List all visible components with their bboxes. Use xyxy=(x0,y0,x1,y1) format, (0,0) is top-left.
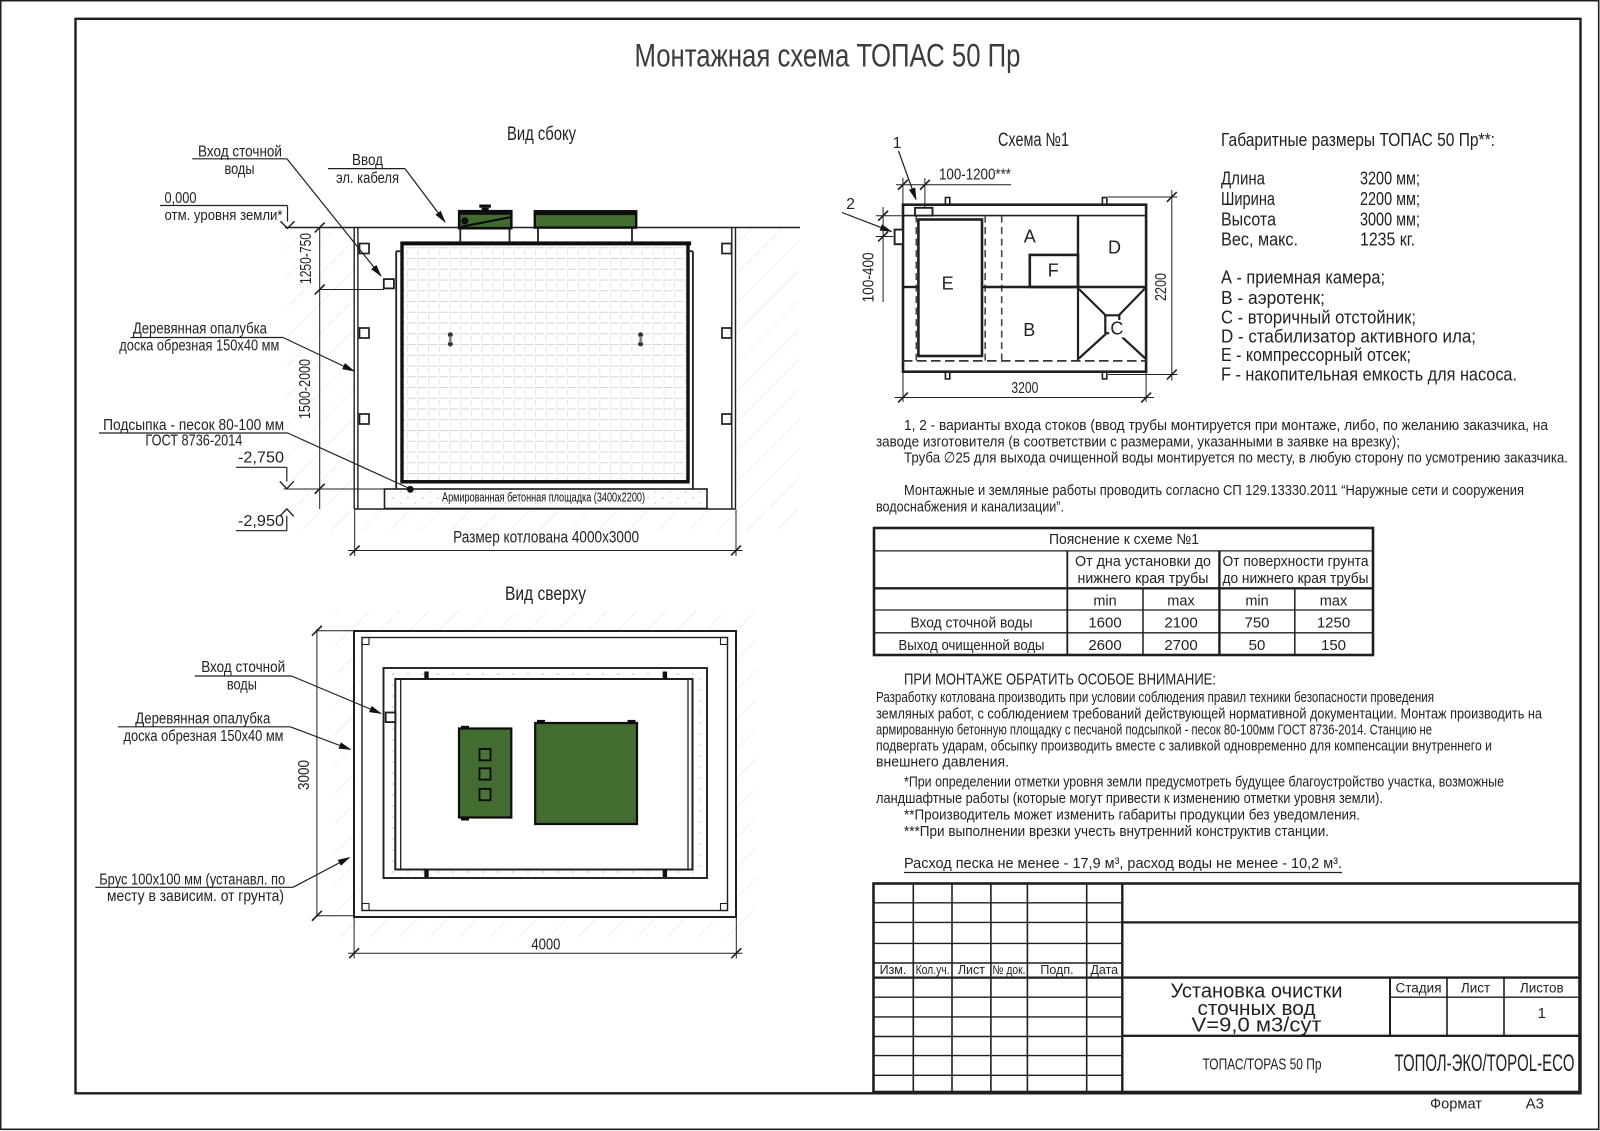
svg-text:воды: воды xyxy=(225,161,255,178)
svg-text:***При выполнении врезки учест: ***При выполнении врезки учесть внутренн… xyxy=(904,823,1329,840)
svg-text:100-1200***: 100-1200*** xyxy=(939,167,1011,184)
svg-text:эл. кабеля: эл. кабеля xyxy=(336,170,399,187)
svg-text:отм. уровня земли*: отм. уровня земли* xyxy=(165,208,283,224)
svg-text:min: min xyxy=(1245,594,1268,610)
svg-text:1250-750: 1250-750 xyxy=(298,233,315,284)
svg-text:1250: 1250 xyxy=(1317,615,1350,632)
svg-text:max: max xyxy=(1320,594,1348,610)
svg-text:Формат: Формат xyxy=(1430,1096,1482,1113)
svg-text:Размер котлована 4000х3000: Размер котлована 4000х3000 xyxy=(453,529,639,547)
svg-text:Е - компрессорный отсек;: Е - компрессорный отсек; xyxy=(1221,344,1411,365)
svg-text:Монтажные и земляные работы пр: Монтажные и земляные работы проводить со… xyxy=(904,482,1524,499)
svg-text:1, 2 - варианты входа стоков: 1, 2 - варианты входа стоков (ввод трубы… xyxy=(904,417,1549,434)
svg-text:150: 150 xyxy=(1321,637,1346,654)
svg-text:От поверхности грунта: От поверхности грунта xyxy=(1223,554,1370,570)
svg-text:Вид сбоку: Вид сбоку xyxy=(507,124,576,145)
svg-text:*При определении отметки уровн: *При определении отметки уровня земли пр… xyxy=(904,774,1504,791)
svg-text:А3: А3 xyxy=(1526,1096,1544,1113)
svg-text:доска обрезная 150х40 мм: доска обрезная 150х40 мм xyxy=(124,728,284,745)
svg-text:Вход сточной: Вход сточной xyxy=(198,144,282,161)
svg-text:4000: 4000 xyxy=(531,937,560,954)
svg-text:нижнего края трубы: нижнего края трубы xyxy=(1078,571,1209,587)
svg-text:Лист: Лист xyxy=(1461,980,1490,995)
svg-text:Подп.: Подп. xyxy=(1040,963,1073,977)
svg-text:750: 750 xyxy=(1244,615,1269,632)
svg-text:Армированная бетонная площадка: Армированная бетонная площадка (3400х220… xyxy=(442,491,645,505)
svg-text:Кол.уч.: Кол.уч. xyxy=(916,963,950,977)
svg-text:Подсыпка - песок 80-100 мм: Подсыпка - песок 80-100 мм xyxy=(103,417,284,434)
svg-text:Деревянная опалубка: Деревянная опалубка xyxy=(133,321,267,338)
svg-text:2700: 2700 xyxy=(1164,637,1197,654)
svg-text:3200 мм;: 3200 мм; xyxy=(1360,168,1420,189)
svg-text:водоснабжения и канализации”.: водоснабжения и канализации”. xyxy=(876,499,1064,516)
svg-text:Пояснение к схеме №1: Пояснение к схеме №1 xyxy=(1049,531,1199,548)
svg-text:ГОСТ 8736-2014: ГОСТ 8736-2014 xyxy=(145,433,242,450)
svg-text:1: 1 xyxy=(1538,1005,1546,1022)
svg-text:В: В xyxy=(1023,320,1035,340)
svg-text:F - накопительная емкость для: F - накопительная емкость для насоса. xyxy=(1221,364,1517,385)
svg-text:внешнего давления.: внешнего давления. xyxy=(876,754,1009,771)
svg-text:2600: 2600 xyxy=(1088,637,1121,654)
svg-text:Расход песка не менее - 17,9 м: Расход песка не менее - 17,9 м³, расход … xyxy=(904,855,1342,872)
svg-text:1500-2000: 1500-2000 xyxy=(297,359,314,419)
svg-text:Высота: Высота xyxy=(1221,209,1277,230)
svg-text:месту в зависим. от грунта): месту в зависим. от грунта) xyxy=(107,888,284,905)
svg-text:Вид сверху: Вид сверху xyxy=(505,584,586,605)
svg-text:max: max xyxy=(1167,594,1195,610)
svg-text:Стадия: Стадия xyxy=(1395,980,1441,995)
svg-text:-2,750: -2,750 xyxy=(238,450,284,467)
svg-text:1: 1 xyxy=(893,135,902,152)
svg-text:Вход сточной: Вход сточной xyxy=(201,659,285,676)
svg-text:Труба ∅25 для выхода очищенной: Труба ∅25 для выхода очищенной воды монт… xyxy=(904,450,1568,467)
svg-text:В - аэротенк;: В - аэротенк; xyxy=(1221,287,1325,308)
svg-text:воды: воды xyxy=(227,676,257,693)
svg-text:min: min xyxy=(1093,594,1116,610)
svg-text:ландшафтные работы (которые мо: ландшафтные работы (которые могут привес… xyxy=(876,790,1383,807)
svg-text:D: D xyxy=(1108,237,1121,257)
svg-text:ТОПОЛ-ЭКО/TOPOL-ECO: ТОПОЛ-ЭКО/TOPOL-ECO xyxy=(1395,1050,1575,1077)
svg-text:Деревянная опалубка: Деревянная опалубка xyxy=(135,711,270,728)
svg-text:С: С xyxy=(1110,319,1123,339)
svg-text:1600: 1600 xyxy=(1088,615,1121,632)
svg-text:Вес, макс.: Вес, макс. xyxy=(1221,229,1298,250)
svg-text:А - приемная камера;: А - приемная камера; xyxy=(1221,267,1385,288)
svg-text:3000: 3000 xyxy=(296,760,313,790)
svg-text:заводе изготовителя (в соответ: заводе изготовителя (в соответствии с ра… xyxy=(876,434,1400,451)
svg-text:Выход очищенной воды: Выход очищенной воды xyxy=(899,637,1045,654)
svg-text:Дата: Дата xyxy=(1090,963,1118,977)
svg-text:V=9,0 м3/сут: V=9,0 м3/сут xyxy=(1192,1015,1322,1037)
svg-text:до нижнего края трубы: до нижнего края трубы xyxy=(1223,571,1369,587)
svg-text:Е: Е xyxy=(942,273,954,293)
svg-text:ПРИ МОНТАЖЕ ОБРАТИТЬ ОСОБОЕ ВН: ПРИ МОНТАЖЕ ОБРАТИТЬ ОСОБОЕ ВНИМАНИЕ: xyxy=(904,672,1216,689)
svg-text:2200 мм;: 2200 мм; xyxy=(1360,188,1420,209)
svg-text:Вход сточной воды: Вход сточной воды xyxy=(911,615,1033,632)
svg-text:№ док.: № док. xyxy=(993,963,1026,977)
svg-text:2: 2 xyxy=(846,196,855,213)
svg-text:Габаритные размеры ТОПАС 50 Пр: Габаритные размеры ТОПАС 50 Пр**: xyxy=(1221,129,1495,150)
svg-text:Схема №1: Схема №1 xyxy=(998,130,1069,151)
svg-text:1235 кг.: 1235 кг. xyxy=(1360,229,1415,250)
svg-text:армированную бетонную площадку: армированную бетонную площадку с песчано… xyxy=(876,722,1432,739)
svg-text:Ввод: Ввод xyxy=(352,152,383,169)
svg-text:3000 мм;: 3000 мм; xyxy=(1360,209,1420,230)
svg-text:земляных работ, с соблюдением: земляных работ, с соблюдением требований… xyxy=(876,706,1543,723)
svg-text:2200: 2200 xyxy=(1153,273,1170,301)
svg-text:3200: 3200 xyxy=(1011,380,1038,397)
svg-text:Лист: Лист xyxy=(958,963,985,977)
svg-text:Разработку котлована производи: Разработку котлована производить при усл… xyxy=(876,689,1434,706)
svg-text:Брус 100х100 мм (устанавл. по: Брус 100х100 мм (устанавл. по xyxy=(99,871,285,888)
svg-text:А: А xyxy=(1024,227,1036,247)
svg-text:подвергать ударам, обсыпку про: подвергать ударам, обсыпку производить в… xyxy=(876,738,1492,755)
svg-text:Монтажная схема ТОПАС 50 Пр: Монтажная схема ТОПАС 50 Пр xyxy=(635,38,1021,74)
svg-text:От дна установки до: От дна установки до xyxy=(1075,554,1211,570)
svg-text:Листов: Листов xyxy=(1520,980,1564,995)
svg-text:F: F xyxy=(1048,261,1059,281)
svg-text:50: 50 xyxy=(1249,637,1266,654)
svg-text:доска обрезная 150х40 мм: доска обрезная 150х40 мм xyxy=(119,338,279,355)
svg-text:2100: 2100 xyxy=(1164,615,1197,632)
svg-text:ТОПАС/TOPAS 50 Пр: ТОПАС/TOPAS 50 Пр xyxy=(1203,1057,1322,1074)
svg-text:0,000: 0,000 xyxy=(165,190,197,207)
svg-text:-2,950: -2,950 xyxy=(238,513,284,530)
svg-text:Изм.: Изм. xyxy=(880,963,907,977)
svg-text:Ширина: Ширина xyxy=(1221,188,1276,209)
svg-text:С - вторичный отстойник;: С - вторичный отстойник; xyxy=(1221,307,1416,328)
svg-text:Длина: Длина xyxy=(1221,168,1266,189)
svg-text:**Производитель может изменить: **Производитель может изменить габариты … xyxy=(904,807,1360,824)
svg-text:100-400: 100-400 xyxy=(860,252,877,302)
